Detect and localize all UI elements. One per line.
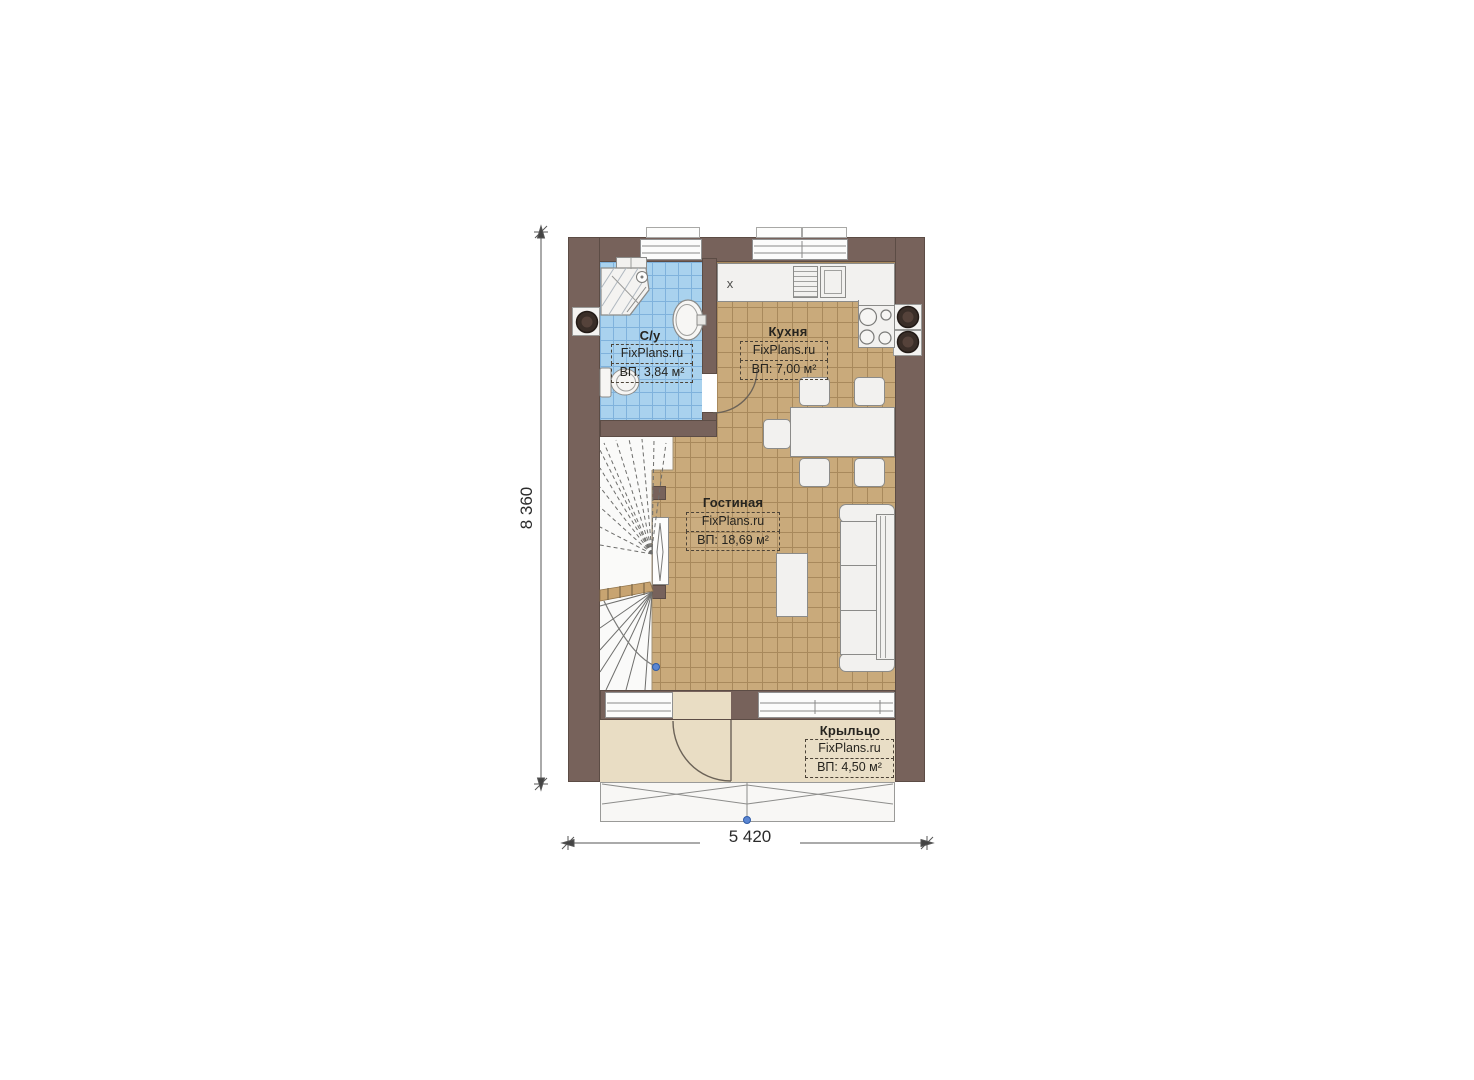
window-sill-top-right-2 <box>802 227 847 238</box>
dimension-height-label: 8 360 <box>517 470 537 546</box>
room-label-bathroom: FixPlans.ru ВП: 3,84 м² <box>611 344 693 383</box>
stove <box>858 305 895 348</box>
watermark-porch: FixPlans.ru <box>805 739 894 759</box>
room-name-kitchen: Кухня <box>748 324 828 339</box>
dining-chair-bottom-1 <box>799 458 830 487</box>
flue-box-left <box>572 307 600 336</box>
watermark-bathroom: FixPlans.ru <box>611 344 693 364</box>
kitchen-appliance-oven <box>793 266 818 298</box>
flue-box-right-1 <box>893 304 922 330</box>
stair-rail <box>652 517 669 585</box>
dimension-width-label: 5 420 <box>700 827 800 847</box>
room-name-living: Гостиная <box>693 495 773 510</box>
wall-bathroom-bottom <box>600 420 717 437</box>
window-bottom-left <box>605 692 673 718</box>
sofa-cushion-2 <box>840 565 877 611</box>
window-top-left <box>640 239 702 260</box>
sofa-cushion-3 <box>840 610 877 655</box>
window-top-right <box>752 239 848 260</box>
sofa-back-line-2 <box>885 516 886 658</box>
room-label-porch: FixPlans.ru ВП: 4,50 м² <box>805 739 894 778</box>
room-name-porch: Крыльцо <box>810 723 890 738</box>
staircase-floor <box>600 470 652 690</box>
floor-plan-page: х С/у FixPlans.ru ВП: 3,84 м² Кухня FixP… <box>0 0 1474 1080</box>
entrance-steps <box>600 782 895 822</box>
coffee-table <box>776 553 808 617</box>
watermark-living: FixPlans.ru <box>686 512 780 532</box>
window-sill-top-left <box>646 227 700 238</box>
area-living: ВП: 18,69 м² <box>686 531 780 551</box>
kitchen-fridge-inner <box>824 270 842 294</box>
wall-bathroom-kitchen <box>702 258 717 374</box>
window-sill-top-right-1 <box>756 227 802 238</box>
area-porch: ВП: 4,50 м² <box>805 758 894 778</box>
sofa-cushion-1 <box>840 521 877 566</box>
entry-door-opening <box>673 692 731 719</box>
dining-chair-top-1 <box>799 377 830 406</box>
dining-chair-top-2 <box>854 377 885 406</box>
kitchen-sink-mark: х <box>718 276 742 291</box>
hall-landing-floor <box>600 437 673 470</box>
room-label-living: FixPlans.ru ВП: 18,69 м² <box>686 512 780 551</box>
window-bottom-right <box>758 692 895 718</box>
watermark-kitchen: FixPlans.ru <box>740 341 828 361</box>
bathroom-shelf <box>616 257 647 270</box>
room-label-kitchen: FixPlans.ru ВП: 7,00 м² <box>740 341 828 380</box>
stair-post-top <box>652 486 666 500</box>
room-name-bathroom: С/у <box>610 328 690 343</box>
stair-post-bottom <box>652 585 666 599</box>
dining-chair-bottom-2 <box>854 458 885 487</box>
dining-chair-left <box>763 419 791 449</box>
area-bathroom: ВП: 3,84 м² <box>611 363 693 383</box>
dining-table <box>790 407 895 457</box>
sofa-back-line-1 <box>880 516 881 658</box>
flue-box-right-2 <box>893 330 922 356</box>
area-kitchen: ВП: 7,00 м² <box>740 360 828 380</box>
